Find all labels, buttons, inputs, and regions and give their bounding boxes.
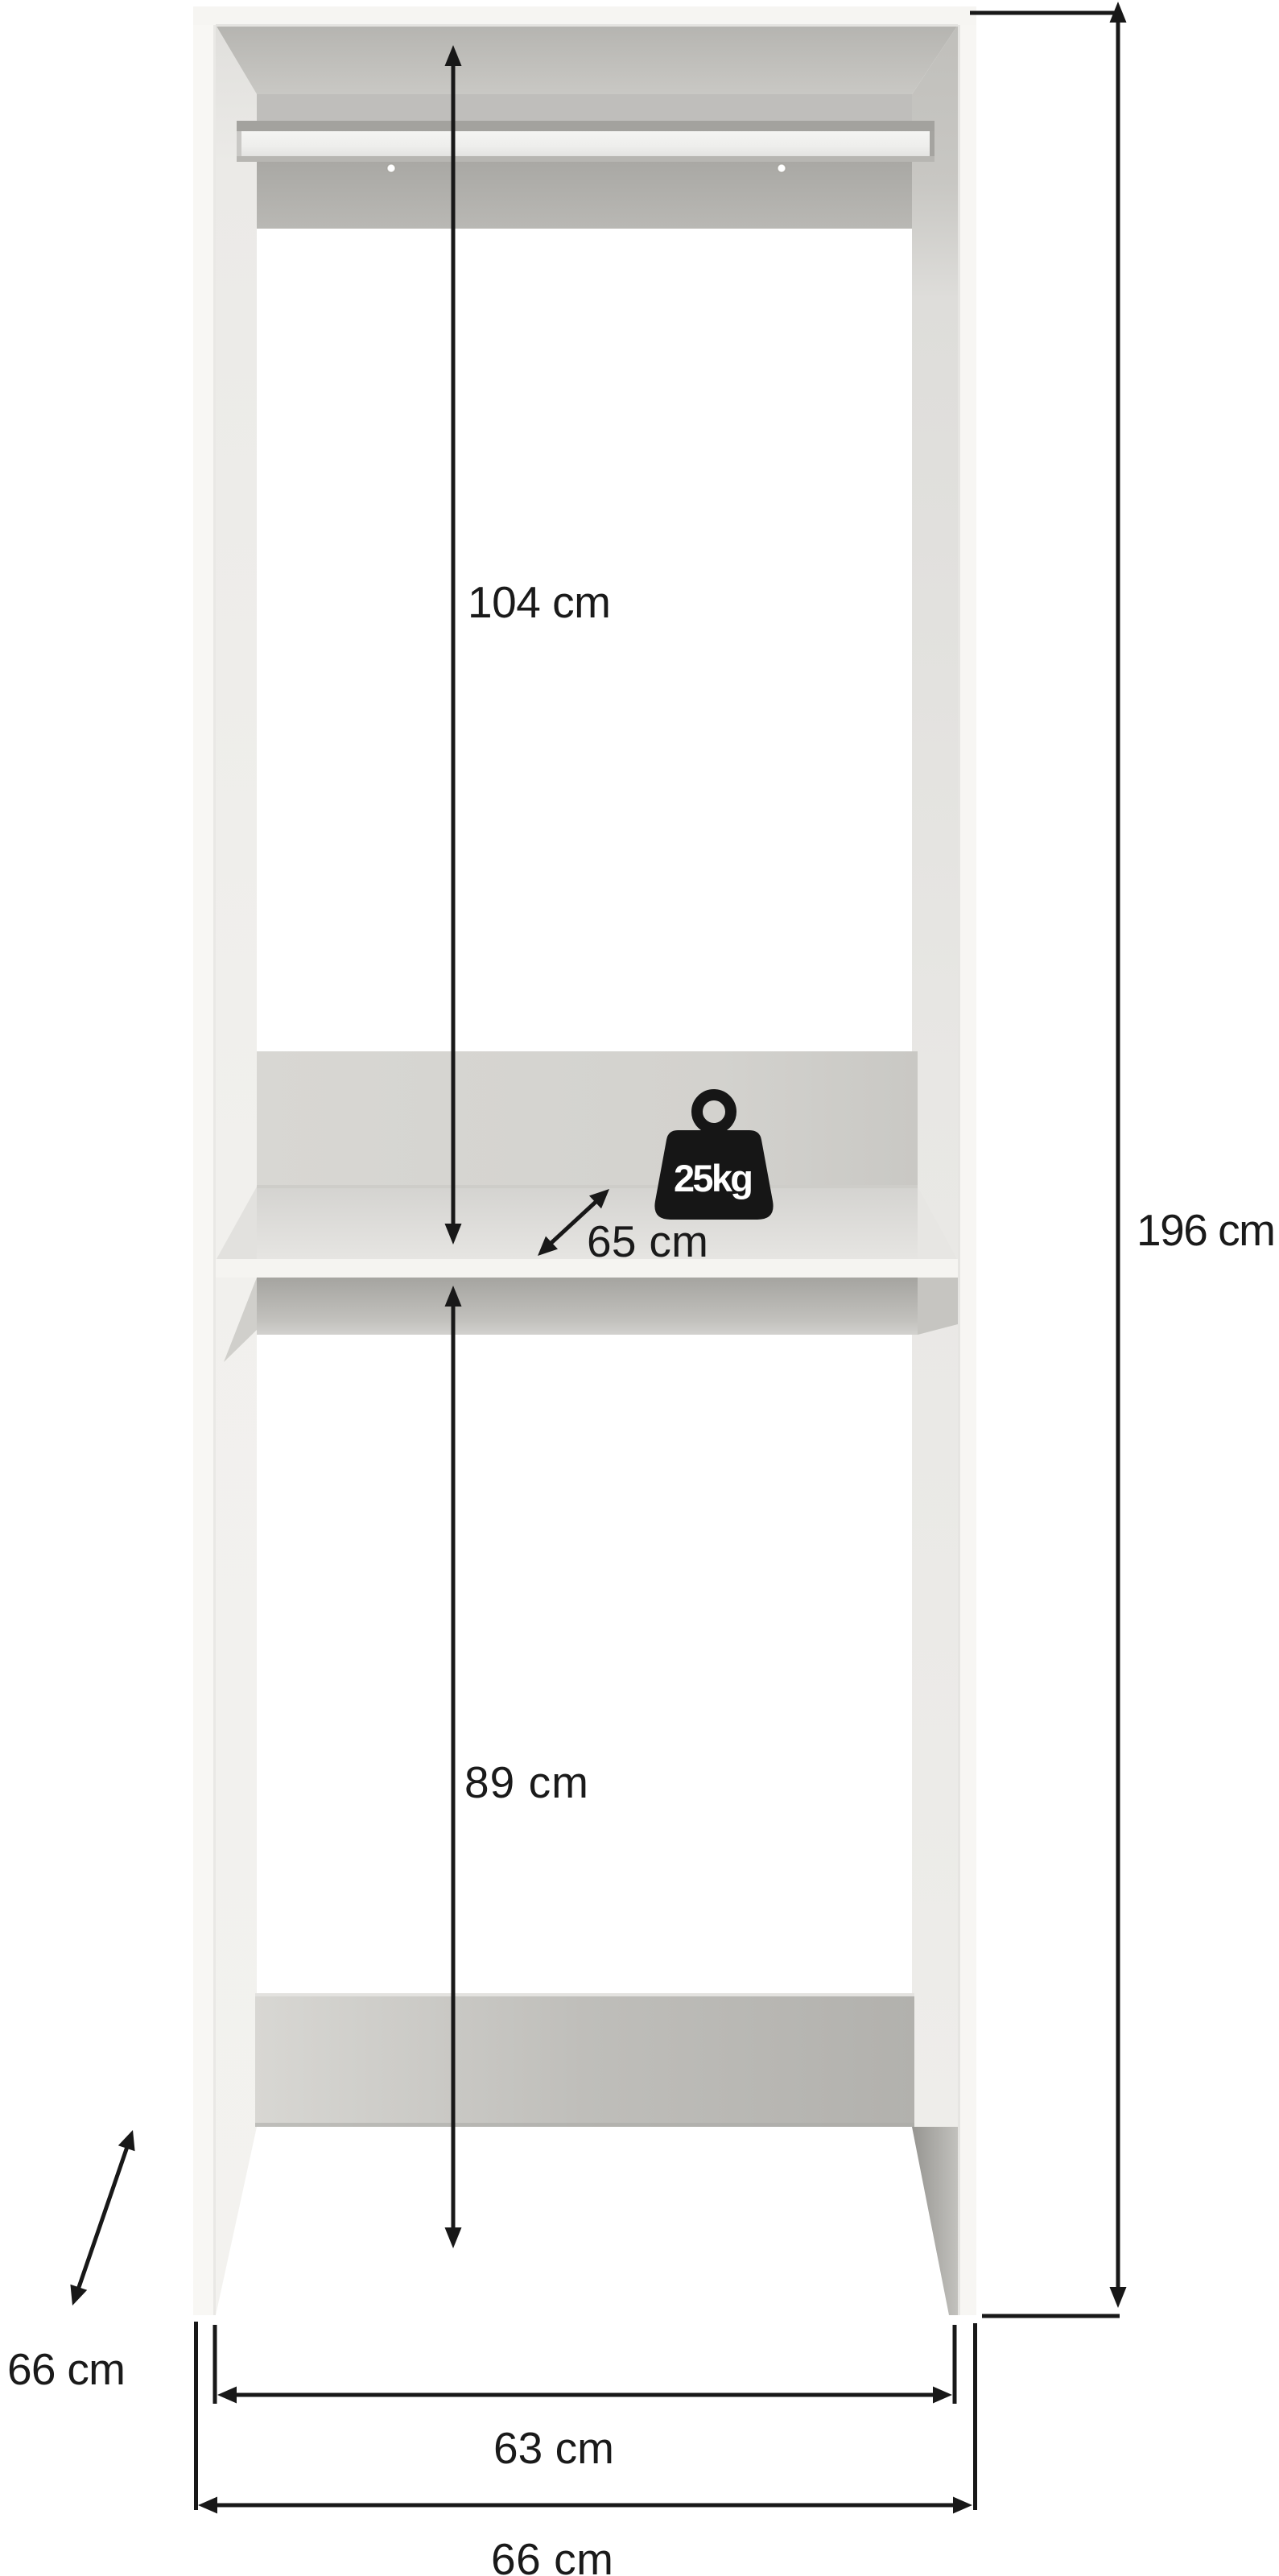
- svg-text:89 cm: 89 cm: [464, 1757, 588, 1807]
- svg-text:66 cm: 66 cm: [491, 2534, 613, 2576]
- svg-text:196 cm: 196 cm: [1137, 1205, 1276, 1255]
- svg-text:63 cm: 63 cm: [493, 2423, 614, 2473]
- svg-text:104 cm: 104 cm: [468, 577, 611, 627]
- svg-text:25kg: 25kg: [674, 1157, 753, 1199]
- svg-text:65 cm: 65 cm: [587, 1216, 708, 1266]
- svg-text:66 cm: 66 cm: [7, 2344, 126, 2394]
